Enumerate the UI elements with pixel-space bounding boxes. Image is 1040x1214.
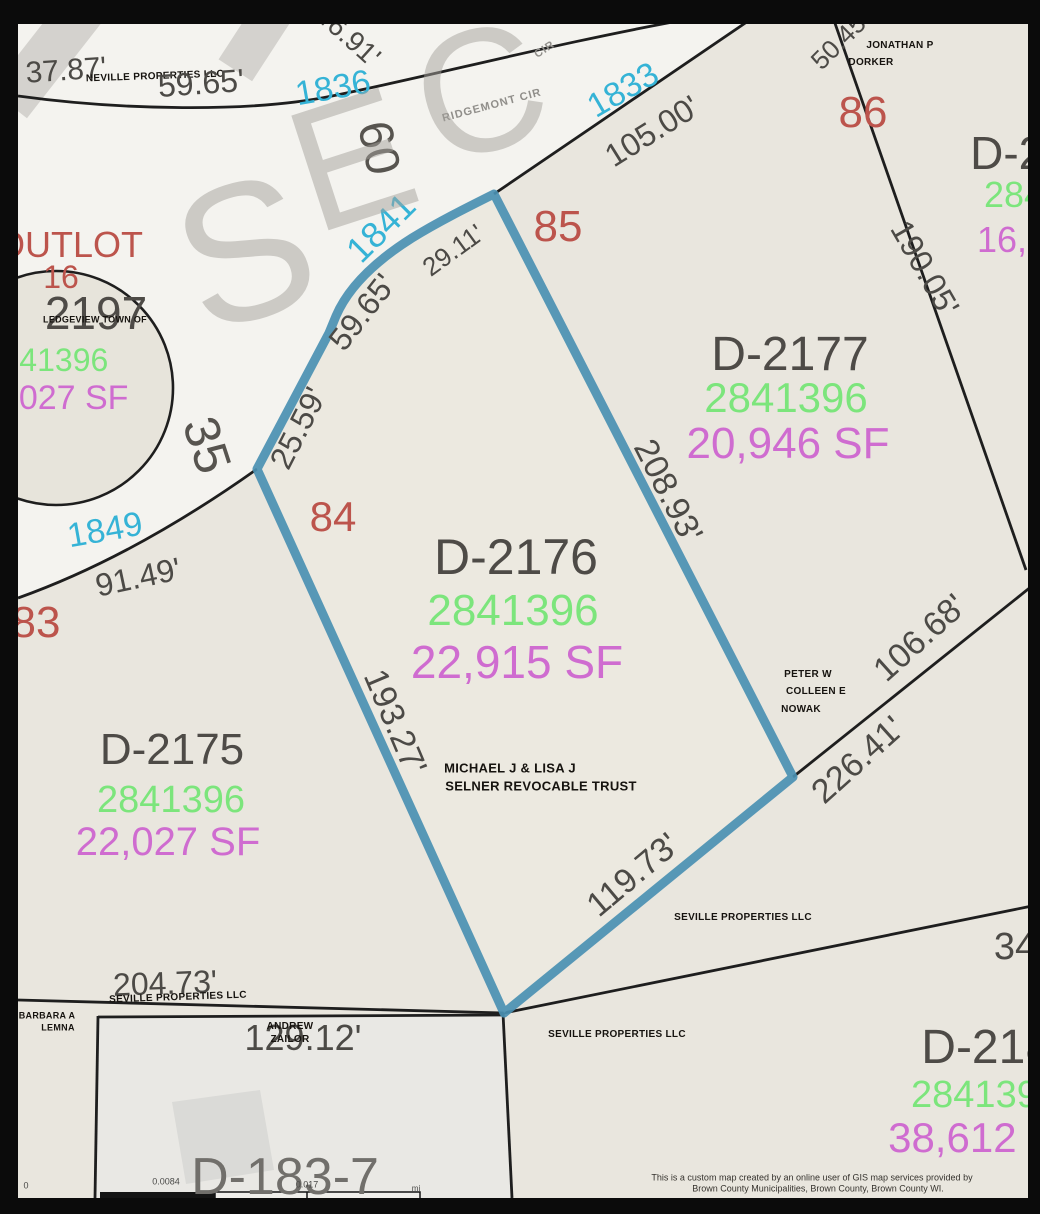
- owner-name-label: LEMNA: [41, 1024, 75, 1033]
- parcel-id-label: D-2183: [921, 1024, 1028, 1072]
- owner-name-label: NOWAK: [781, 705, 821, 715]
- scalebar-label: mi: [412, 1185, 420, 1193]
- parcel-pin-label: 2841396: [97, 781, 245, 819]
- owner-name-label: SEVILLE PROPERTIES LLC: [674, 913, 812, 923]
- parcel-area-label: 22,027 SF: [76, 822, 261, 862]
- scalebar-label: 0: [23, 1182, 28, 1191]
- owner-name-label: JONATHAN P: [866, 41, 933, 51]
- parcel-area-label: 22,027 SF: [18, 381, 128, 415]
- owner-name-label: SELNER REVOCABLE TRUST: [445, 780, 637, 793]
- dimension-label: 34: [994, 928, 1028, 966]
- lot-number-label: 85: [534, 205, 583, 249]
- dimension-label: 59.65': [157, 64, 245, 102]
- scalebar-label: 0.017: [296, 1181, 319, 1190]
- parcel-area-label: 38,612 SF: [888, 1117, 1028, 1159]
- lot-number-label: OUTLOT: [18, 227, 143, 263]
- parcel-pin-label: 2841396: [704, 377, 868, 419]
- owner-name-label: ZAILOR: [270, 1035, 309, 1045]
- owner-name-label: SEVILLE PROPERTIES LLC: [548, 1030, 686, 1040]
- boundary-south-left: [18, 1000, 504, 1013]
- lot-number-label: 83: [18, 601, 60, 645]
- boundary-nowak: [793, 586, 1028, 777]
- parcel-area-label: 22,915 SF: [411, 639, 623, 685]
- owner-name-label: PETER W: [784, 670, 832, 680]
- owner-name-label: LEDGEVIEW TOWN OF: [43, 316, 147, 325]
- parcel-area-label: 20,946 SF: [686, 422, 889, 466]
- parcel-pin-label: 2841396: [911, 1076, 1028, 1114]
- owner-name-label: MICHAEL J & LISA J: [444, 762, 576, 775]
- owner-name-label: BARBARA A: [19, 1012, 76, 1021]
- owner-name-label: DORKER: [848, 58, 893, 68]
- parcel-id-label: D-2176: [434, 532, 598, 582]
- parcel-id-label: D-2175: [100, 728, 244, 772]
- parcel-pin-label: 2841396: [427, 589, 598, 633]
- map-disclaimer: Brown County Municipalities, Brown Count…: [692, 1185, 943, 1194]
- scalebar-label: 0.0084: [152, 1178, 180, 1187]
- screenshot-frame: 37.87'NEVILLE PROPERTIES LLC59.65'46.91'…: [0, 0, 1040, 1214]
- parcel-pin-label: 2841: [984, 177, 1028, 213]
- owner-name-label: COLLEEN E: [786, 687, 846, 697]
- lot-number-label: 86: [839, 91, 888, 135]
- parcel-id-label: D-21: [970, 130, 1028, 176]
- parcel-pin-label: 2841396: [18, 344, 108, 376]
- parcel-area-label: 16,64: [977, 222, 1028, 258]
- map-disclaimer: This is a custom map created by an onlin…: [651, 1174, 972, 1183]
- parcel-id-label: 2197: [45, 290, 147, 336]
- parcel-id-label: D-2177: [711, 331, 868, 379]
- owner-name-label: ANDREW: [267, 1022, 314, 1032]
- lot-number-label: 84: [310, 496, 357, 538]
- parcel-id-label: D-183-7: [191, 1151, 379, 1198]
- map-area: 37.87'NEVILLE PROPERTIES LLC59.65'46.91'…: [18, 24, 1028, 1198]
